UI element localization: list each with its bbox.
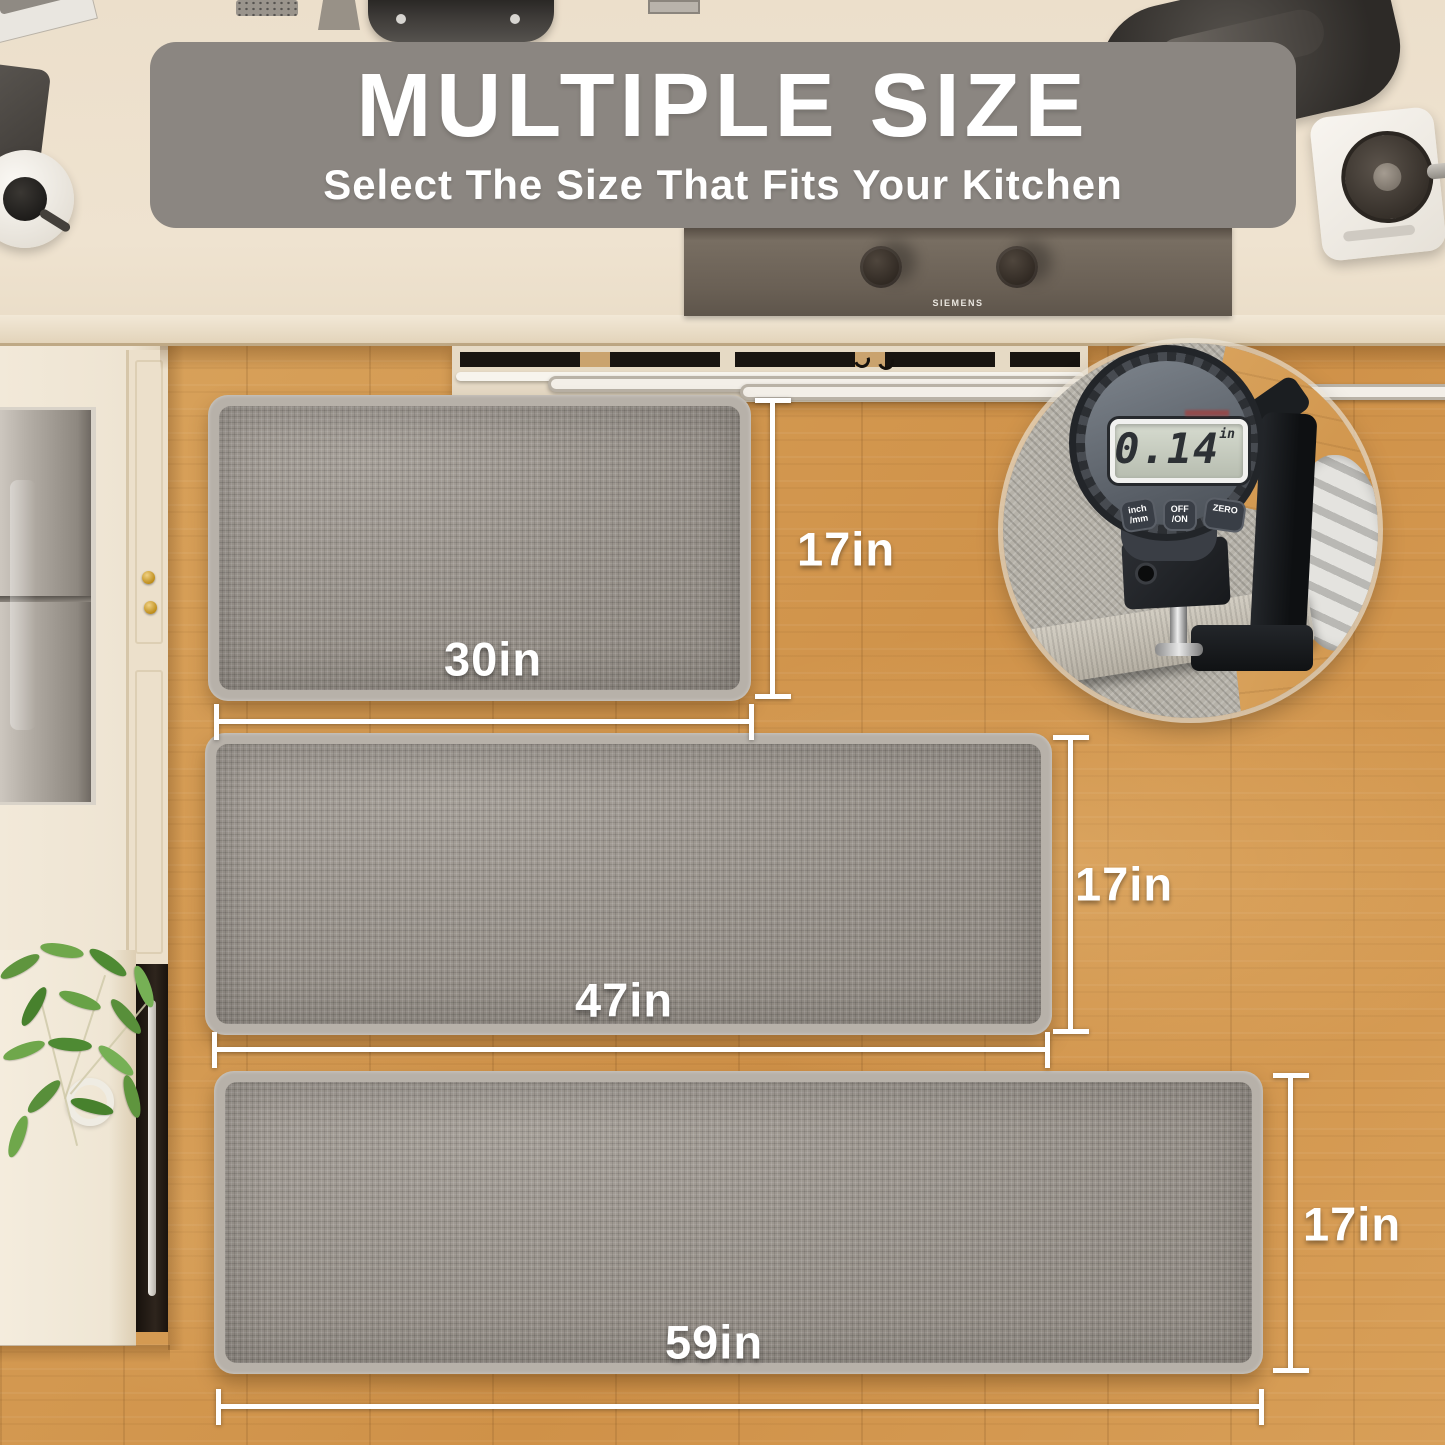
size-banner: MULTIPLE SIZE Select The Size That Fits … (150, 42, 1296, 228)
kettle-lid (1337, 126, 1438, 227)
cooktop-brand: SIEMENS (910, 298, 1006, 308)
leaf-icon (57, 987, 103, 1014)
leaf-icon (120, 1074, 144, 1120)
width-dimension-line (214, 719, 754, 724)
gauge-buttons: inch/mm OFF/ON ZERO (1091, 499, 1275, 531)
height-dimension-line (1068, 735, 1073, 1034)
mat-height-label: 17in (1075, 857, 1173, 912)
mat-height-label: 17in (797, 522, 895, 577)
cabinet-door (126, 350, 168, 964)
cabinet-knob-icon (142, 571, 155, 584)
button-label: OFF (1171, 504, 1189, 514)
kitchen-mat-size-infographic: SIEMENS 30in 47in 59in 17in 17in 17in MU… (0, 0, 1445, 1445)
thickness-reading: 0.14in (1114, 428, 1235, 470)
cooktop-panel: SIEMENS (684, 224, 1232, 316)
button-label: /ON (1172, 514, 1188, 524)
caliper-anvil (1155, 643, 1203, 656)
potted-plant (0, 938, 198, 1208)
leaf-icon (86, 945, 129, 981)
height-dimension-line (1288, 1073, 1293, 1373)
off-on-button: OFF/ON (1163, 499, 1197, 531)
island-floor-shadow (0, 1345, 170, 1363)
gauge-face: 0.14in inch/mm OFF/ON ZERO (1085, 361, 1249, 525)
leaf-icon (4, 1114, 31, 1160)
kettle (1309, 106, 1445, 262)
mat-width-label: 59in (665, 1315, 763, 1370)
gauge-brand-mark (1185, 410, 1229, 416)
cabinet-drawer-unit (452, 346, 1088, 402)
leaf-icon (39, 940, 85, 960)
stainless-appliance (0, 407, 96, 805)
cup (318, 0, 360, 30)
mat-width-label: 30in (444, 632, 542, 687)
button-label: /mm (1129, 512, 1149, 525)
cabinet-knob-icon (144, 601, 157, 614)
digital-thickness-gauge: 0.14in inch/mm OFF/ON ZERO (1069, 345, 1265, 541)
grater (236, 0, 298, 16)
banner-subtitle: Select The Size That Fits Your Kitchen (323, 161, 1123, 209)
zero-button: ZERO (1202, 496, 1247, 533)
cooktop-knob-icon (860, 246, 902, 288)
thickness-unit: in (1219, 427, 1235, 442)
gauge-lcd: 0.14in (1110, 419, 1248, 483)
coffee-machine (0, 150, 74, 248)
kitchen-scale (648, 0, 700, 14)
mat-width-label: 47in (575, 973, 673, 1028)
button-label: ZERO (1212, 502, 1238, 515)
inch-mm-button: inch/mm (1119, 496, 1158, 533)
width-dimension-line (216, 1404, 1264, 1409)
countertop-box (0, 0, 98, 44)
caliper-frame-foot (1191, 625, 1313, 671)
leaf-icon (1, 1037, 47, 1064)
pan (368, 0, 554, 42)
banner-title: MULTIPLE SIZE (356, 61, 1089, 151)
mat-height-label: 17in (1303, 1197, 1401, 1252)
leaf-icon (0, 950, 42, 983)
leaf-icon (130, 964, 157, 1010)
drawer-slots (460, 352, 1080, 367)
width-dimension-line (212, 1047, 1050, 1052)
thickness-inset: 0.14in inch/mm OFF/ON ZERO (1003, 343, 1378, 718)
height-dimension-line (770, 398, 775, 699)
cooktop-knob-icon (996, 246, 1038, 288)
caliper-spindle (1170, 601, 1187, 649)
thickness-value: 0.14 (1114, 424, 1219, 473)
kettle-vent (1343, 224, 1416, 241)
leaf-icon (24, 1076, 64, 1116)
leaf-icon (107, 995, 145, 1037)
leaf-icon (95, 1041, 137, 1079)
